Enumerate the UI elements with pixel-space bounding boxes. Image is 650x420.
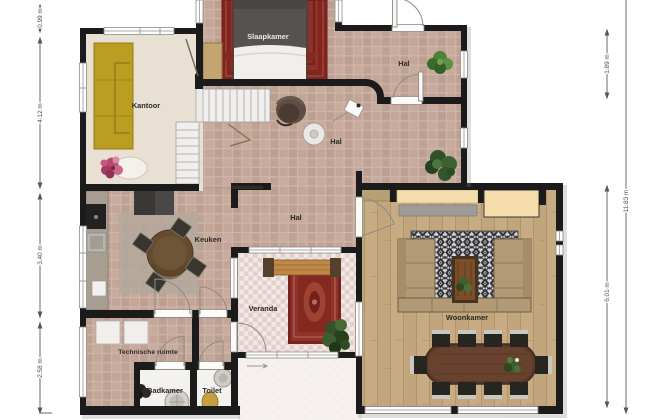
svg-text:6.01 m: 6.01 m (604, 282, 611, 302)
svg-text:Badkamer: Badkamer (147, 386, 183, 395)
svg-text:Keuken: Keuken (195, 235, 222, 244)
svg-text:Technische ruimte: Technische ruimte (118, 349, 178, 356)
svg-text:4.12 m: 4.12 m (37, 103, 44, 123)
svg-text:Kantoor: Kantoor (132, 101, 160, 110)
svg-text:Hal: Hal (290, 213, 302, 222)
svg-text:Woonkamer: Woonkamer (446, 313, 488, 322)
svg-text:Veranda: Veranda (249, 304, 279, 313)
svg-text:Slaapkamer: Slaapkamer (247, 32, 289, 41)
svg-text:0.99 m: 0.99 m (37, 8, 44, 28)
svg-text:1.89 m: 1.89 m (604, 54, 611, 74)
svg-text:Hal: Hal (330, 137, 342, 146)
svg-text:3.40 m: 3.40 m (37, 245, 44, 265)
svg-text:Hal: Hal (398, 59, 410, 68)
svg-text:Toilet: Toilet (202, 386, 222, 395)
svg-text:11.83 m: 11.83 m (623, 190, 630, 213)
svg-text:2.58 m: 2.58 m (37, 358, 44, 378)
